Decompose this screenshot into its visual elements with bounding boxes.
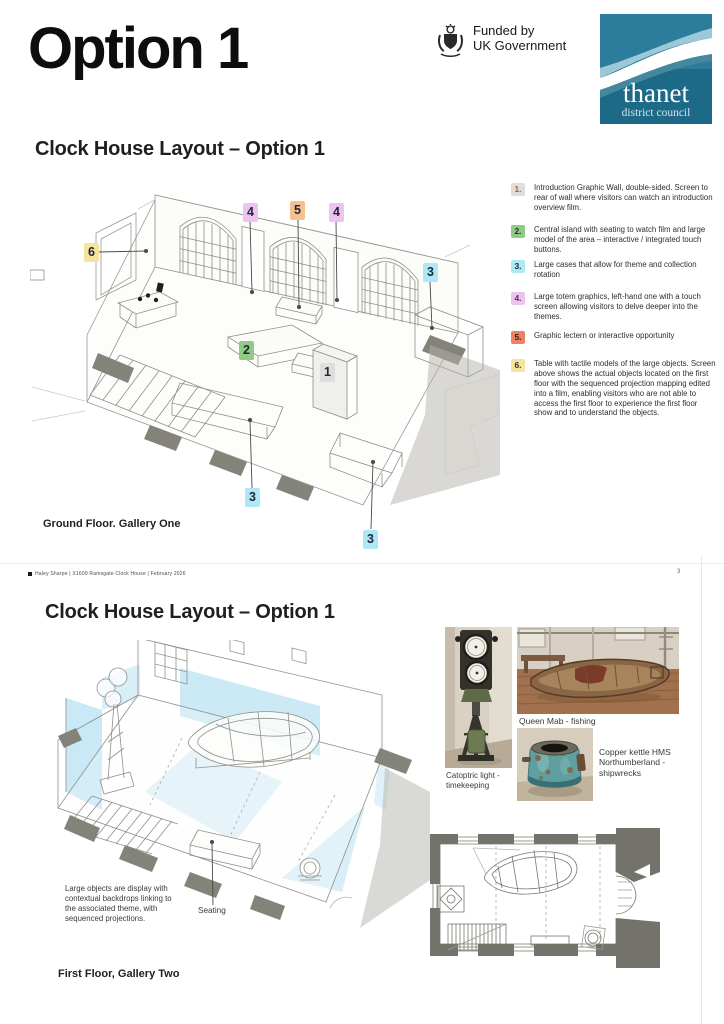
funder-text: Funded by UK Government [473,24,566,53]
legend-text-4: Large totem graphics, left-hand one with… [534,292,716,322]
thanet-subtitle: district council [622,107,691,119]
legend-chip-4: 4. [511,292,525,305]
marker-6: 6 [84,243,99,262]
section2-title: Clock House Layout – Option 1 [45,601,335,624]
marker-5: 5 [290,201,305,220]
marker-2: 2 [239,341,254,360]
exterior-shadow [360,768,430,928]
large-objects-annotation: Large objects are display with contextua… [65,884,181,924]
report-page: Option 1 Funded by UK Government thanet … [0,0,724,1024]
ground-floor-caption: Ground Floor. Gallery One [43,518,181,530]
footer-text: Haley Sharpe | X1609 Ramsgate Clock Hous… [35,571,186,577]
seating-label: Seating [198,906,226,917]
legend-chip-2: 2. [511,225,525,238]
marker-3-bottom: 3 [245,488,260,507]
uk-government-line: UK Government [473,39,566,54]
legend-text-5: Graphic lectern or interactive opportuni… [534,331,716,341]
ground-floor-sketch [30,175,500,560]
legend-item-2: 2. Central island with seating to watch … [511,225,717,255]
legend-chip-1: 1. [511,183,525,196]
page-title: Option 1 [28,20,247,78]
legend-text-2: Central island with seating to watch fil… [534,225,716,255]
legend-text-3: Large cases that allow for theme and col… [534,260,716,280]
footer-logo-mark [28,572,32,576]
first-floor-caption: First Floor, Gallery Two [58,968,179,980]
plan-boat [473,848,577,894]
legend-chip-6: 6. [511,359,525,372]
plan-light [438,886,464,912]
thanet-wordmark: thanet [623,78,689,108]
legend-text-1: Introduction Graphic Wall, double-sided.… [534,183,716,213]
legend-item-4: 4. Large totem graphics, left-hand one w… [511,292,717,322]
copper-kettle-photo [517,728,593,801]
legend-item-5: 5. Graphic lectern or interactive opport… [511,331,717,344]
catoptric-photo-caption: Catoptric light - timekeeping [446,771,518,791]
legend-chip-5: 5. [511,331,525,344]
uk-gov-funding-logo: Funded by UK Government [437,24,566,58]
legend-item-3: 3. Large cases that allow for theme and … [511,260,717,280]
marker-3-right: 3 [423,263,438,282]
queen-mab-photo [517,627,679,714]
footer-credit: Haley Sharpe | X1609 Ramsgate Clock Hous… [28,571,186,577]
slide-divider [0,563,724,564]
marker-4-left: 4 [243,203,258,222]
legend-item-1: 1. Introduction Graphic Wall, double-sid… [511,183,717,213]
marker-1: 1 [320,363,335,382]
legend-text-6: Table with tactile models of the large o… [534,359,716,418]
thanet-council-logo: thanet district council [600,14,712,124]
first-floor-plan [428,826,668,976]
royal-crest-icon [437,24,464,58]
marker-3-bottom-right: 3 [363,530,378,549]
legend-item-6: 6. Table with tactile models of the larg… [511,359,717,418]
catoptric-light-photo [445,627,512,768]
section1-title: Clock House Layout – Option 1 [35,138,325,161]
queen-mab-caption: Queen Mab - fishing [519,716,596,726]
page-edge-line [701,556,702,1024]
page-number: 3 [677,569,680,575]
legend-chip-3: 3. [511,260,525,273]
kettle-caption: Copper kettle HMS Northumberland - shipw… [599,747,679,778]
marker-4-right: 4 [329,203,344,222]
funded-by-line: Funded by [473,24,566,39]
